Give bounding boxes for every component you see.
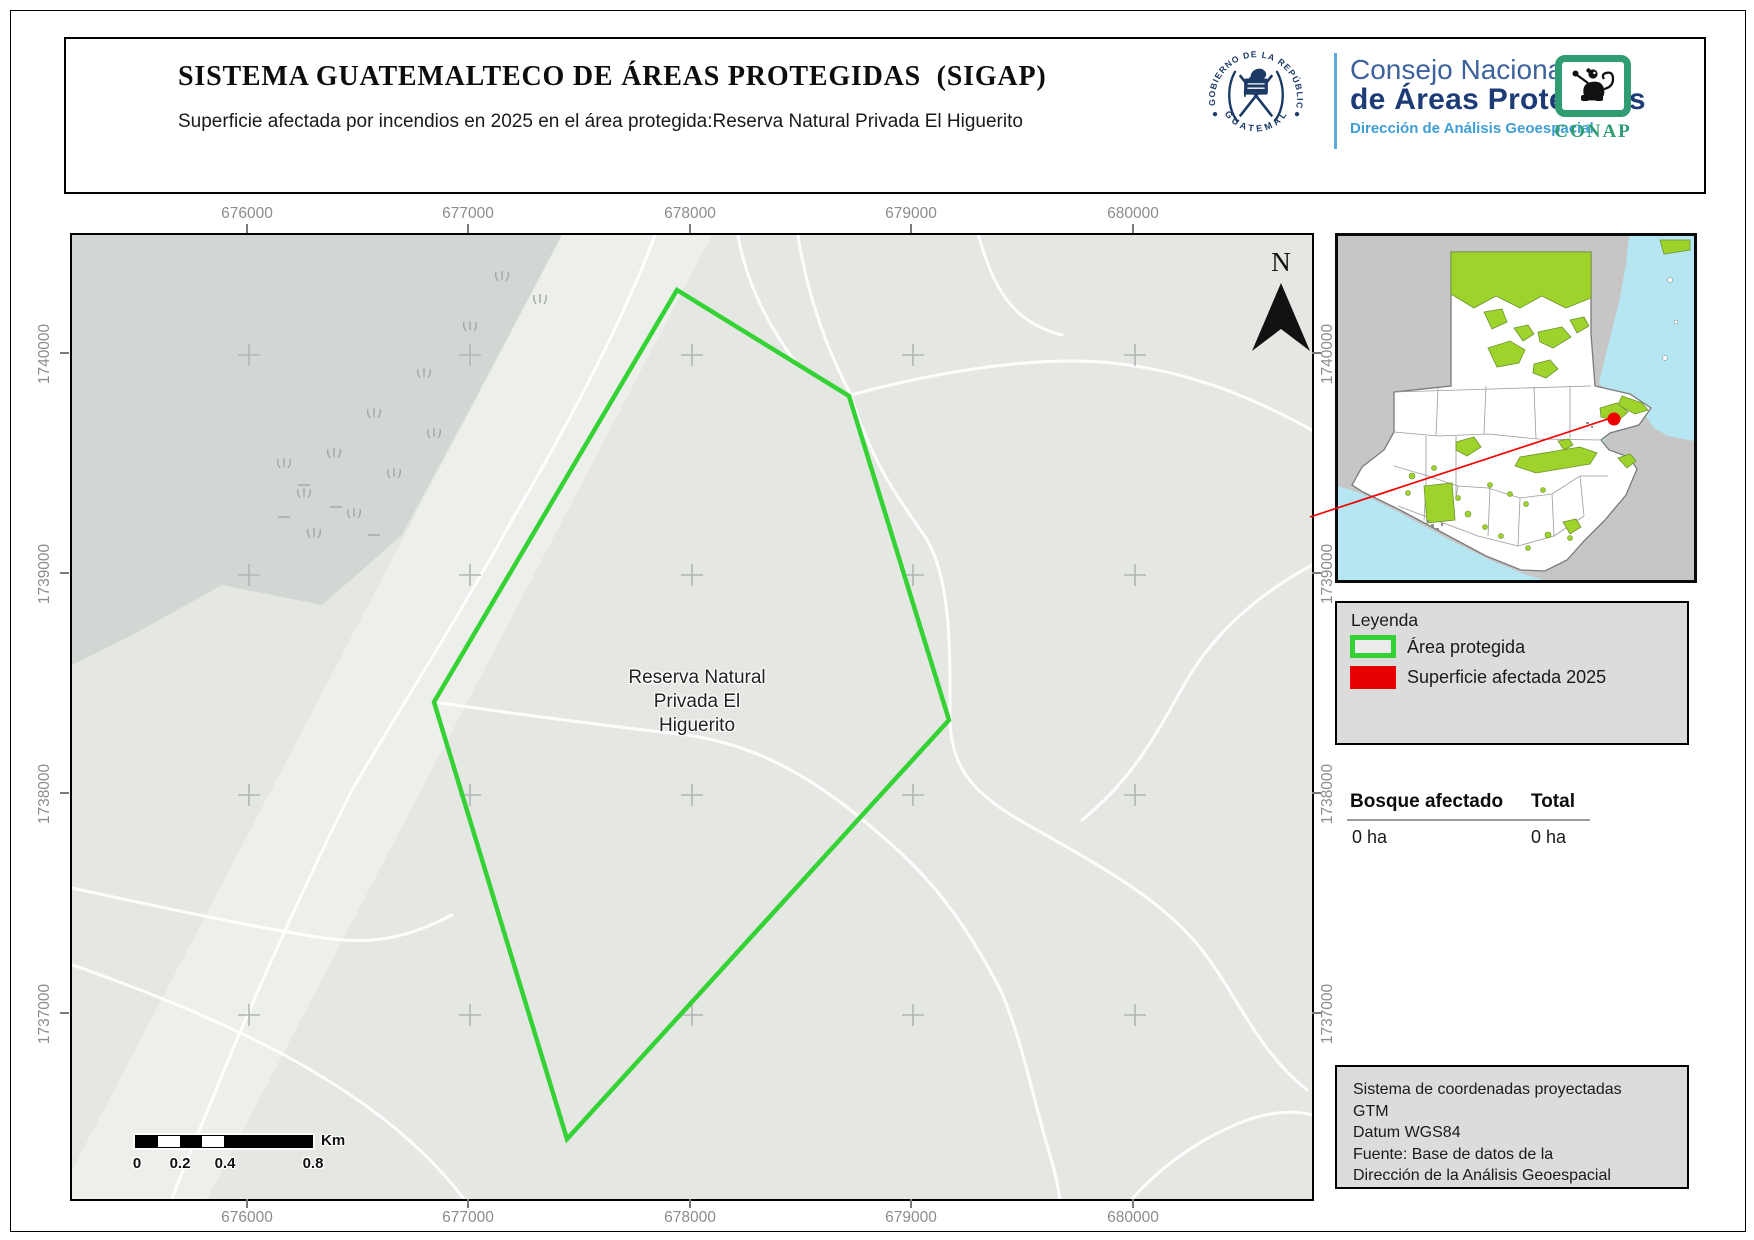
axis-tick <box>60 572 69 574</box>
axis-tick <box>689 224 691 233</box>
scale-bar-segment <box>136 1136 158 1147</box>
page-subtitle: Superficie afectada por incendios en 202… <box>178 111 1023 133</box>
government-emblem-logo: GOBIERNO DE LA REPÚBLICA GUATEMALA <box>1202 45 1310 153</box>
axis-tick <box>1132 224 1134 233</box>
inset-map-canvas <box>1338 236 1694 580</box>
y-axis-label-right: 1737000 <box>1319 974 1337 1054</box>
x-axis-label-top: 677000 <box>428 205 508 223</box>
scale-bar-segment <box>180 1136 202 1147</box>
axis-tick <box>1132 1199 1134 1208</box>
legend: Leyenda Área protegida Superficie afecta… <box>1335 601 1689 745</box>
y-axis-label-left: 1739000 <box>36 534 54 614</box>
axis-tick <box>689 1199 691 1208</box>
info-line: Fuente: Base de datos de la <box>1353 1144 1687 1166</box>
x-axis-label-bottom: 677000 <box>428 1209 508 1227</box>
axis-tick <box>60 352 69 354</box>
scale-bar-unit: Km <box>321 1132 345 1149</box>
area-label-line3: Higuerito <box>575 714 819 738</box>
header: SISTEMA GUATEMALTECO DE ÁREAS PROTEGIDAS… <box>64 37 1706 194</box>
conap-wordmark: CONAP <box>1553 121 1633 143</box>
y-axis-label-right: 1738000 <box>1319 754 1337 834</box>
legend-title: Leyenda <box>1351 610 1418 631</box>
axis-tick <box>246 1199 248 1208</box>
conap-monkey-icon <box>1562 62 1622 108</box>
page-title: SISTEMA GUATEMALTECO DE ÁREAS PROTEGIDAS… <box>178 61 1046 93</box>
x-axis-label-bottom: 679000 <box>871 1209 951 1227</box>
axis-tick <box>60 1012 69 1014</box>
x-axis-label-bottom: 676000 <box>207 1209 287 1227</box>
guatemala-inset-map <box>1335 233 1697 583</box>
stats-header-total: Total <box>1531 791 1575 813</box>
legend-swatch-protected-area <box>1350 635 1396 658</box>
x-axis-label-bottom: 678000 <box>650 1209 730 1227</box>
info-line: Dirección de la Análisis Geoespacial <box>1353 1165 1687 1187</box>
protected-area-name-label: Reserva Natural Privada El Higuerito <box>575 666 819 738</box>
axis-tick <box>467 1199 469 1208</box>
info-line: Datum WGS84 <box>1353 1122 1687 1144</box>
legend-swatch-affected-surface <box>1350 666 1396 689</box>
x-axis-label-top: 678000 <box>650 205 730 223</box>
scale-bar-label-02: 0.2 <box>160 1155 200 1172</box>
legend-label-protected-area: Área protegida <box>1407 637 1525 658</box>
axis-tick <box>246 224 248 233</box>
scale-bar-label-08: 0.8 <box>293 1155 333 1172</box>
axis-tick <box>60 792 69 794</box>
area-label-line1: Reserva Natural <box>575 666 819 690</box>
stats-divider-line <box>1347 819 1590 821</box>
info-line: GTM <box>1353 1101 1687 1123</box>
stats-value-bosque-afectado: 0 ha <box>1352 827 1387 848</box>
conap-logo <box>1555 55 1631 117</box>
scale-bar-segment <box>224 1136 312 1147</box>
scale-bar-label-04: 0.4 <box>205 1155 245 1172</box>
y-axis-label-left: 1740000 <box>36 314 54 394</box>
north-arrow-label: N <box>1271 247 1291 277</box>
scale-bar <box>135 1135 313 1148</box>
x-axis-label-top: 680000 <box>1093 205 1173 223</box>
stats-header-bosque-afectado: Bosque afectado <box>1350 791 1503 813</box>
y-axis-label-left: 1738000 <box>36 754 54 834</box>
header-divider <box>1334 53 1337 149</box>
scale-bar-segment <box>202 1136 224 1147</box>
map-document-page: SISTEMA GUATEMALTECO DE ÁREAS PROTEGIDAS… <box>0 0 1754 1240</box>
axis-tick <box>910 1199 912 1208</box>
area-label-line2: Privada El <box>575 690 819 714</box>
y-axis-label-left: 1737000 <box>36 974 54 1054</box>
x-axis-label-top: 679000 <box>871 205 951 223</box>
scale-bar-label-0: 0 <box>117 1155 157 1172</box>
legend-label-affected-surface: Superficie afectada 2025 <box>1407 667 1606 688</box>
x-axis-label-bottom: 680000 <box>1093 1209 1173 1227</box>
axis-tick <box>910 224 912 233</box>
location-marker-dot <box>1608 413 1621 426</box>
x-axis-label-top: 676000 <box>207 205 287 223</box>
scale-bar-segment <box>158 1136 180 1147</box>
info-line: Sistema de coordenadas proyectadas <box>1353 1079 1687 1101</box>
axis-tick <box>467 224 469 233</box>
stats-value-total: 0 ha <box>1531 827 1566 848</box>
coordinate-system-info-box: Sistema de coordenadas proyectadas GTM D… <box>1335 1065 1689 1189</box>
